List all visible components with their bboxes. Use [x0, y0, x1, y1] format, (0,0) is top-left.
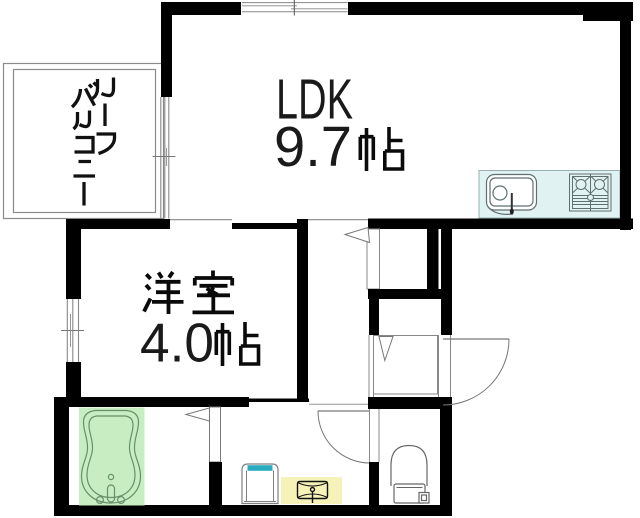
svg-text:4.0: 4.0 [140, 312, 214, 374]
svg-text:9.7: 9.7 [274, 115, 352, 179]
